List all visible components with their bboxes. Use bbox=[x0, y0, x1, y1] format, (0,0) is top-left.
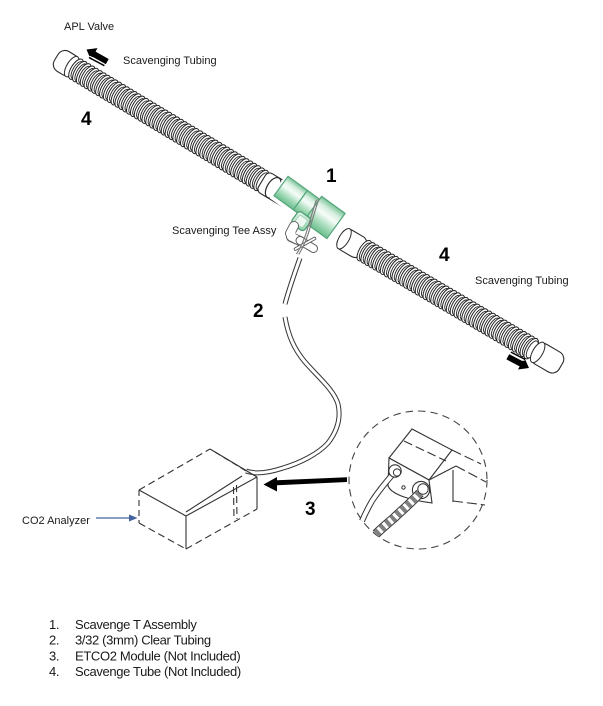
svg-text:CO2 Analyzer: CO2 Analyzer bbox=[22, 515, 90, 527]
svg-text:Scavenging Tubing: Scavenging Tubing bbox=[475, 275, 569, 287]
svg-text:2: 2 bbox=[253, 301, 264, 322]
svg-text:Scavenging Tubing: Scavenging Tubing bbox=[123, 55, 217, 67]
svg-text:1.: 1. bbox=[49, 617, 59, 632]
svg-text:4: 4 bbox=[439, 245, 450, 266]
svg-text:4.: 4. bbox=[49, 664, 59, 679]
svg-text:3: 3 bbox=[305, 499, 316, 520]
svg-text:2.: 2. bbox=[49, 633, 59, 648]
svg-text:3.: 3. bbox=[49, 648, 59, 663]
svg-text:ETCO2 Module (Not Included): ETCO2 Module (Not Included) bbox=[75, 648, 240, 663]
svg-text:3/32 (3mm) Clear Tubing: 3/32 (3mm) Clear Tubing bbox=[75, 633, 211, 648]
svg-text:Scavenge Tube (Not Included): Scavenge Tube (Not Included) bbox=[75, 664, 241, 679]
svg-text:Scavenging Tee Assy: Scavenging Tee Assy bbox=[172, 225, 277, 237]
svg-text:Scavenge T Assembly: Scavenge T Assembly bbox=[75, 617, 197, 632]
svg-text:1: 1 bbox=[326, 166, 337, 187]
svg-text:APL Valve: APL Valve bbox=[64, 21, 114, 33]
svg-text:4: 4 bbox=[81, 109, 92, 130]
